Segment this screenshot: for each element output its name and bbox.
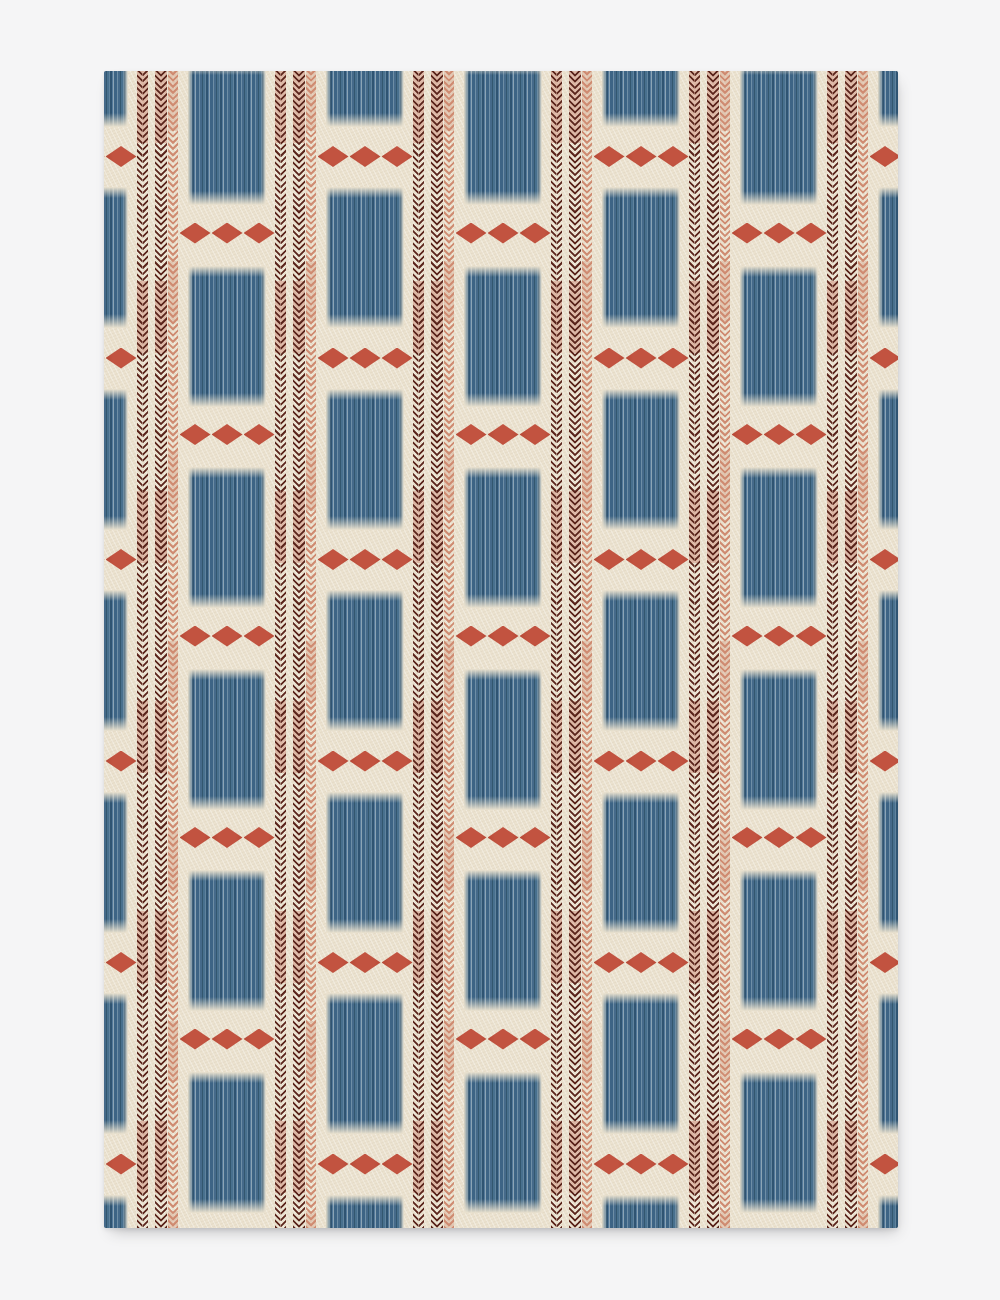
diamond-motif [764, 223, 795, 244]
diamond-motif [104, 952, 105, 973]
ikat-rectangle [878, 187, 898, 328]
ikat-rectangle [188, 467, 266, 608]
diamond-motif [180, 223, 211, 244]
diamond-motif [594, 952, 625, 973]
diamond-motif [764, 827, 795, 848]
diamond-motif [212, 827, 243, 848]
diamond-motif [212, 223, 243, 244]
ikat-rectangle [188, 71, 266, 205]
diamond-motif [796, 626, 827, 647]
diamond-motif [382, 952, 413, 973]
diamond-motif [870, 549, 899, 570]
diamond-motif [244, 424, 275, 445]
diamond-motif [488, 827, 519, 848]
diamond-motif [594, 1154, 625, 1175]
herringbone-stripe-salmon [168, 71, 178, 1228]
diamond-motif [626, 549, 657, 570]
ikat-rectangle [188, 669, 266, 810]
herringbone-stripe-maroon [827, 71, 838, 1228]
diamond-motif [870, 1154, 899, 1175]
diamond-motif [658, 751, 689, 772]
diamond-motif [106, 348, 137, 369]
diamond-motif [796, 827, 827, 848]
diamond-motif [318, 549, 349, 570]
diamond-motif [520, 223, 551, 244]
herringbone-stripe-maroon [845, 71, 857, 1228]
ikat-rectangle [104, 389, 128, 530]
ikat-rectangle [464, 669, 542, 810]
diamond-motif [212, 626, 243, 647]
diamond-motif [626, 751, 657, 772]
diamond-motif [382, 348, 413, 369]
ikat-rectangle [740, 1072, 818, 1213]
ikat-rectangle [602, 993, 680, 1134]
diamond-motif [732, 223, 763, 244]
diamond-motif [350, 549, 381, 570]
diamond-motif [594, 348, 625, 369]
ikat-rectangle [740, 266, 818, 407]
diamond-motif [520, 424, 551, 445]
diamond-motif [350, 751, 381, 772]
ikat-rectangle [188, 870, 266, 1011]
diamond-motif [104, 751, 105, 772]
ikat-rectangle [326, 993, 404, 1134]
herringbone-stripe-salmon [858, 71, 868, 1228]
diamond-motif [244, 827, 275, 848]
ikat-rectangle [878, 993, 898, 1134]
ikat-rectangle [326, 792, 404, 933]
diamond-motif [456, 424, 487, 445]
diamond-motif [764, 424, 795, 445]
diamond-motif [350, 348, 381, 369]
diamond-motif [318, 348, 349, 369]
diamond-motif [350, 1154, 381, 1175]
page-background [0, 0, 1000, 1300]
diamond-motif [488, 223, 519, 244]
diamond-motif [350, 146, 381, 167]
ikat-rectangle [878, 389, 898, 530]
diamond-motif [626, 1154, 657, 1175]
herringbone-stripe-salmon [444, 71, 454, 1228]
ikat-rectangle [740, 870, 818, 1011]
ikat-rectangle [326, 71, 404, 127]
diamond-motif [594, 549, 625, 570]
diamond-motif [732, 1029, 763, 1050]
ikat-rectangle [104, 1195, 128, 1229]
herringbone-stripe-maroon [707, 71, 719, 1228]
ikat-rectangle [464, 870, 542, 1011]
ikat-rectangle [602, 71, 680, 127]
diamond-motif [796, 223, 827, 244]
diamond-motif [106, 952, 137, 973]
rug-product-image [104, 71, 898, 1228]
ikat-rectangle [740, 669, 818, 810]
diamond-motif [180, 424, 211, 445]
herringbone-stripe-salmon [306, 71, 316, 1228]
ikat-rectangle [878, 71, 898, 127]
ikat-rectangle [878, 1195, 898, 1229]
diamond-motif [180, 626, 211, 647]
diamond-motif [658, 952, 689, 973]
diamond-motif [382, 146, 413, 167]
diamond-motif [350, 952, 381, 973]
herringbone-stripe-maroon [431, 71, 443, 1228]
diamond-motif [520, 827, 551, 848]
diamond-motif [104, 549, 105, 570]
diamond-motif [180, 1029, 211, 1050]
diamond-motif [318, 952, 349, 973]
diamond-motif [106, 146, 137, 167]
diamond-motif [456, 223, 487, 244]
diamond-motif [106, 751, 137, 772]
diamond-motif [796, 424, 827, 445]
diamond-motif [382, 751, 413, 772]
diamond-motif [106, 549, 137, 570]
diamond-motif [658, 1154, 689, 1175]
diamond-motif [658, 549, 689, 570]
diamond-motif [456, 1029, 487, 1050]
diamond-motif [106, 1154, 137, 1175]
herringbone-stripe-maroon [275, 71, 286, 1228]
ikat-rectangle [464, 266, 542, 407]
diamond-motif [658, 348, 689, 369]
diamond-motif [626, 146, 657, 167]
diamond-motif [870, 751, 899, 772]
ikat-rectangle [104, 187, 128, 328]
herringbone-stripe-salmon [582, 71, 592, 1228]
diamond-motif [318, 751, 349, 772]
diamond-motif [594, 146, 625, 167]
diamond-motif [244, 626, 275, 647]
herringbone-stripe-salmon [720, 71, 730, 1228]
herringbone-stripe-maroon [137, 71, 148, 1228]
ikat-rectangle [878, 792, 898, 933]
herringbone-stripe-maroon [569, 71, 581, 1228]
ikat-rectangle [464, 467, 542, 608]
herringbone-stripe-maroon [293, 71, 305, 1228]
diamond-motif [796, 1029, 827, 1050]
herringbone-stripe-maroon [551, 71, 562, 1228]
diamond-motif [488, 626, 519, 647]
diamond-motif [180, 827, 211, 848]
herringbone-stripe-maroon [155, 71, 167, 1228]
diamond-motif [764, 626, 795, 647]
ikat-rectangle [602, 590, 680, 731]
herringbone-stripe-maroon [689, 71, 700, 1228]
diamond-motif [764, 1029, 795, 1050]
diamond-motif [244, 1029, 275, 1050]
ikat-rectangle [602, 389, 680, 530]
diamond-motif [104, 1154, 105, 1175]
ikat-rectangle [602, 1195, 680, 1229]
diamond-motif [658, 146, 689, 167]
herringbone-stripe-maroon [413, 71, 424, 1228]
ikat-rectangle [104, 71, 128, 127]
diamond-motif [104, 348, 105, 369]
ikat-rectangle [326, 1195, 404, 1229]
ikat-rectangle [740, 71, 818, 205]
diamond-motif [732, 827, 763, 848]
ikat-rectangle [602, 792, 680, 933]
diamond-motif [212, 424, 243, 445]
ikat-rectangle [104, 590, 128, 731]
diamond-motif [104, 146, 105, 167]
ikat-rectangle [188, 266, 266, 407]
diamond-motif [594, 751, 625, 772]
diamond-motif [212, 1029, 243, 1050]
ikat-rectangle [878, 590, 898, 731]
diamond-motif [870, 348, 899, 369]
diamond-motif [488, 424, 519, 445]
diamond-motif [488, 1029, 519, 1050]
ikat-rectangle [188, 1072, 266, 1213]
diamond-motif [520, 1029, 551, 1050]
diamond-motif [456, 626, 487, 647]
diamond-motif [520, 626, 551, 647]
ikat-rectangle [464, 1072, 542, 1213]
diamond-motif [626, 348, 657, 369]
diamond-motif [244, 223, 275, 244]
ikat-rectangle [326, 590, 404, 731]
diamond-motif [318, 146, 349, 167]
diamond-motif [732, 424, 763, 445]
diamond-motif [382, 1154, 413, 1175]
ikat-rectangle [104, 792, 128, 933]
diamond-motif [456, 827, 487, 848]
ikat-rectangle [740, 467, 818, 608]
diamond-motif [870, 146, 899, 167]
ikat-rectangle [464, 71, 542, 205]
ikat-rectangle [104, 993, 128, 1134]
diamond-motif [870, 952, 899, 973]
ikat-rectangle [326, 187, 404, 328]
diamond-motif [626, 952, 657, 973]
diamond-motif [318, 1154, 349, 1175]
ikat-rectangle [326, 389, 404, 530]
ikat-rectangle [602, 187, 680, 328]
diamond-motif [382, 549, 413, 570]
diamond-motif [732, 626, 763, 647]
